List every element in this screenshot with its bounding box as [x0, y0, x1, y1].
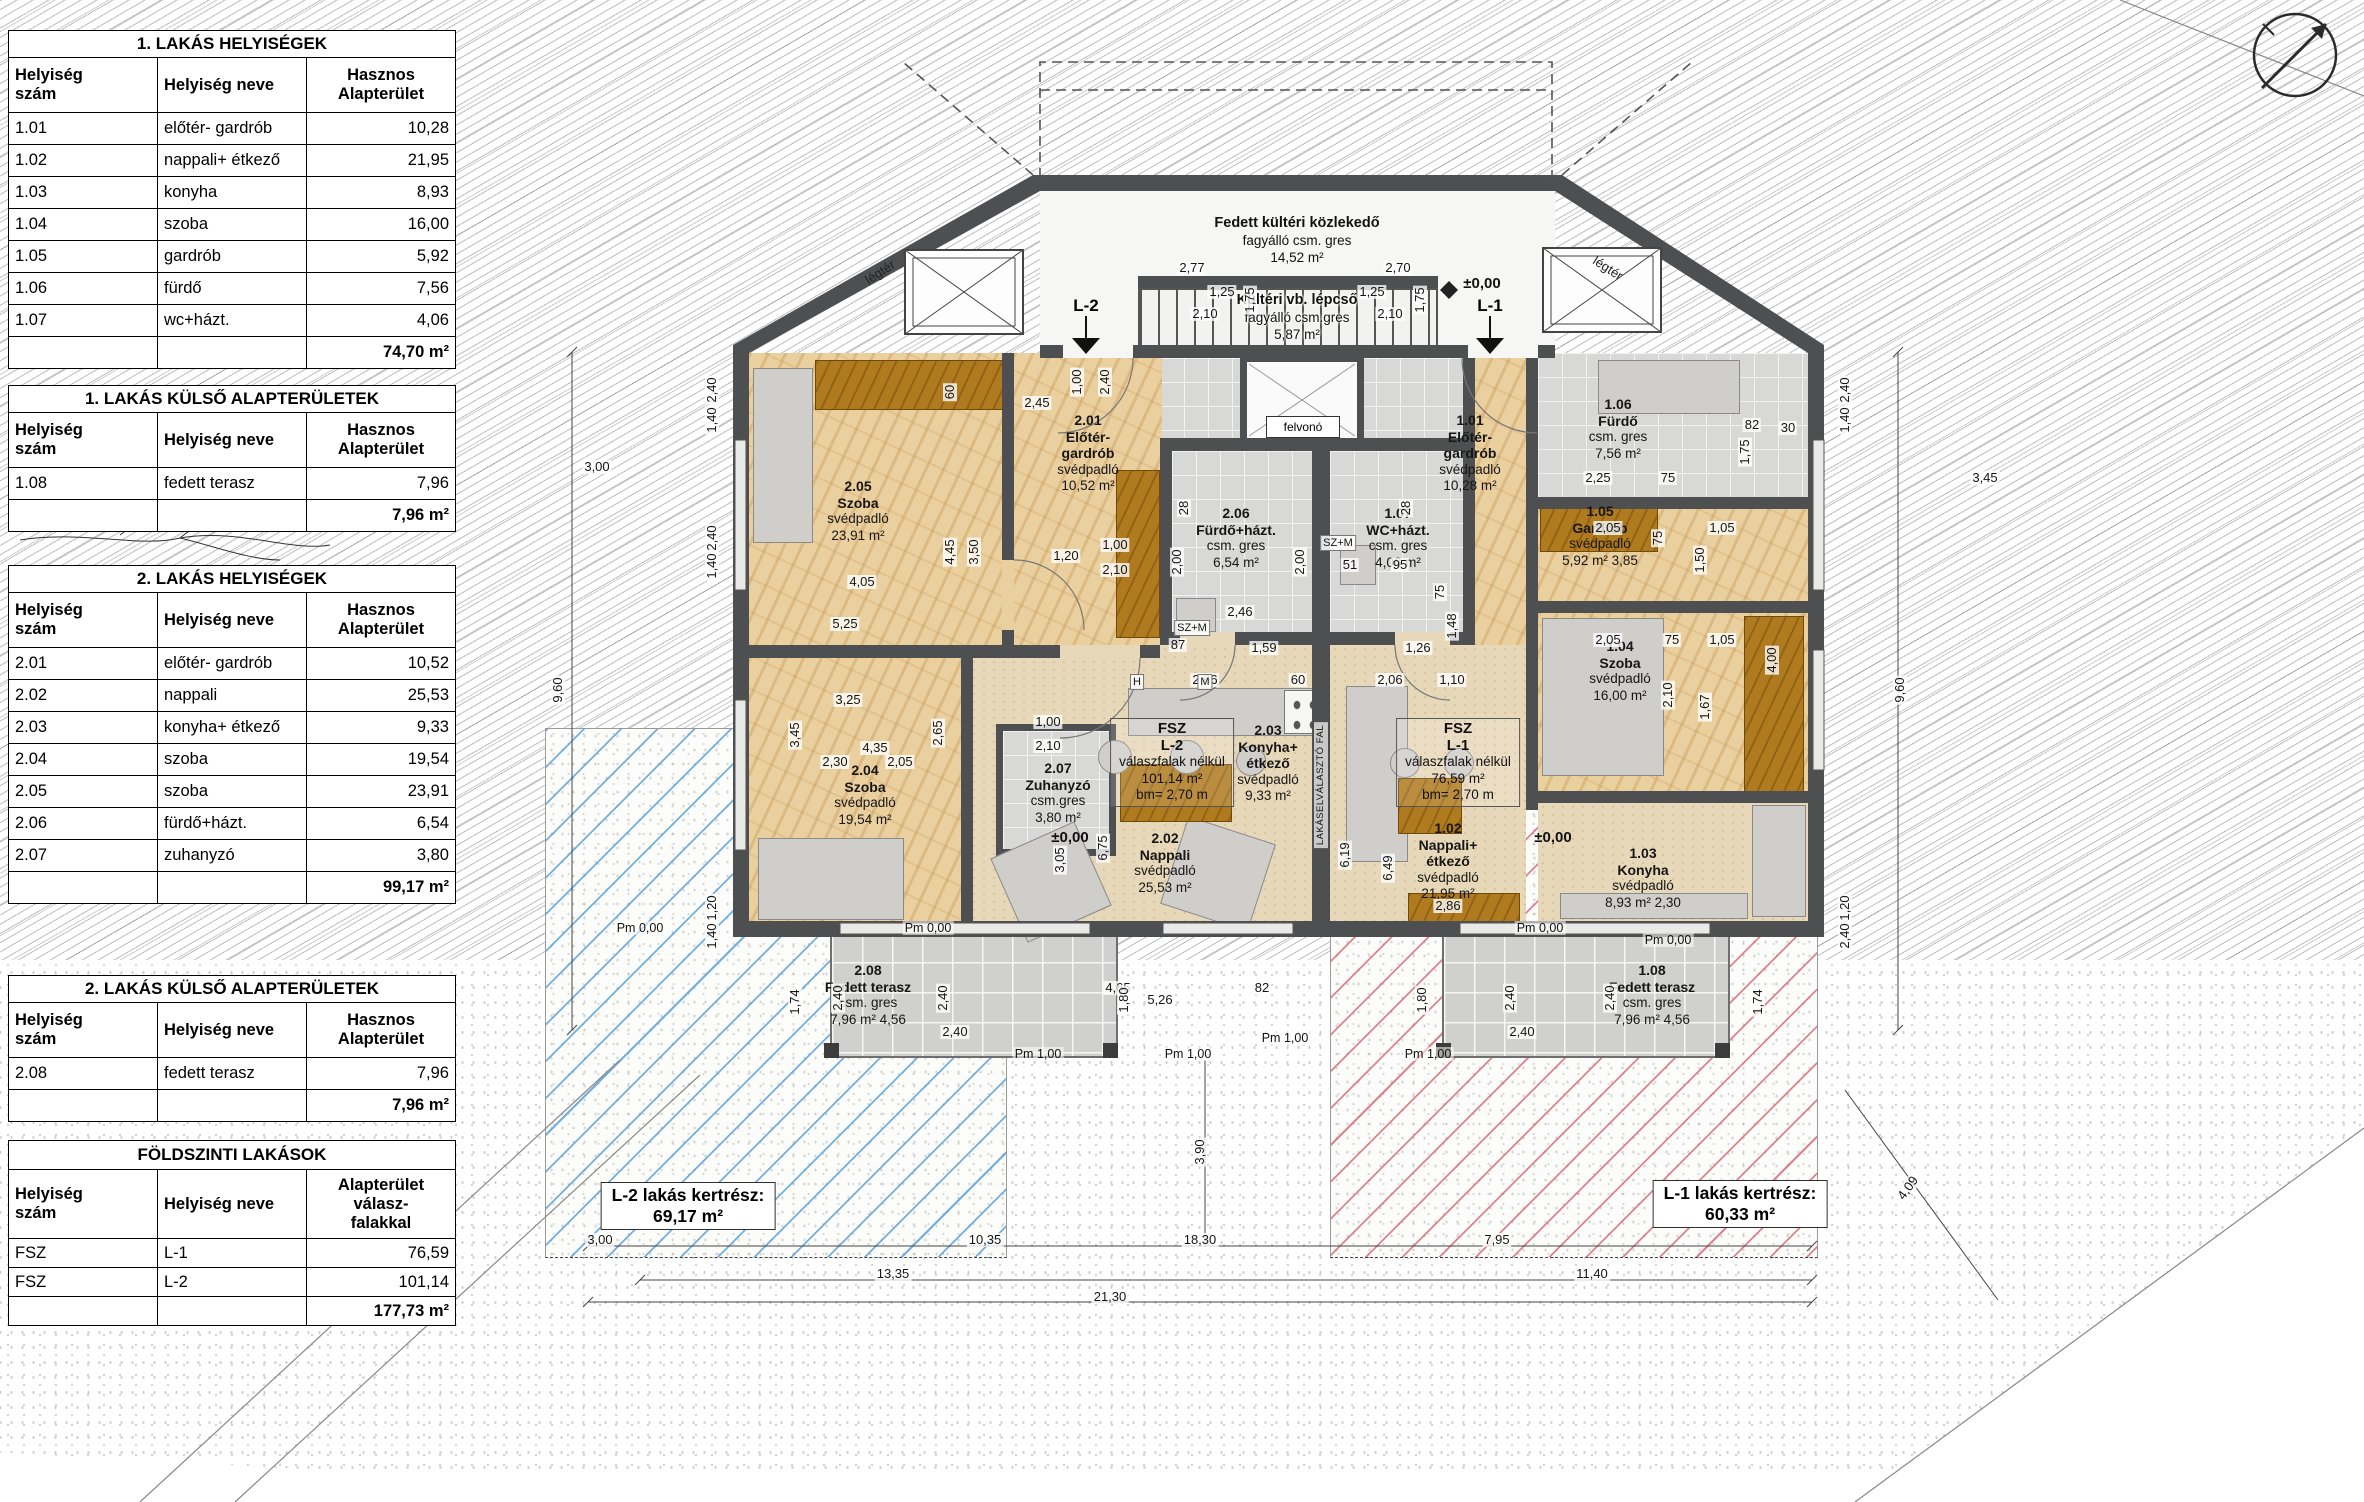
dim-label: 82: [1743, 418, 1761, 432]
dim-label: 2,40: [1838, 375, 1852, 404]
dim-label: 3,90: [1193, 1137, 1207, 1166]
room-label-1.04: 1.04Szobasvédpadló16,00 m²: [1535, 638, 1705, 704]
dim-label: 3,00: [585, 1233, 614, 1247]
dim-label: 2,46: [1225, 605, 1254, 619]
plan-annotation: ±0,00: [1532, 831, 1573, 845]
dim-label: 3,45: [788, 720, 802, 749]
terrace-pillar: [1715, 1043, 1730, 1058]
plan-annotation: Pm 1,00: [1403, 1047, 1454, 1061]
room-label-2.05: 2.05Szobasvédpadló23,91 m²: [773, 478, 943, 544]
entrance-area-label: Fedett kültéri közlekedő fagyálló csm. g…: [1137, 215, 1457, 266]
dim-label: 2,30: [820, 755, 849, 769]
dim-label: 1,50: [1693, 545, 1707, 574]
plan-annotation: SZ+M: [1174, 620, 1210, 636]
entrance-title: Fedett kültéri közlekedő: [1137, 215, 1457, 232]
dim-label: 2,40: [831, 983, 845, 1012]
area-table: FÖLDSZINTI LAKÁSOKHelyiségszámHelyiség n…: [8, 1140, 456, 1326]
dim-label: 5,25: [830, 617, 859, 631]
dim-label: 1,75: [1243, 285, 1257, 314]
dim-label: 1,40: [1838, 405, 1852, 434]
plan-annotation: H: [1130, 674, 1144, 690]
garden-l1-title: L-1 lakás kertrész:: [1664, 1183, 1817, 1204]
dim-label: 9,60: [1893, 675, 1907, 704]
dim-label: 18,30: [1182, 1233, 1219, 1247]
dim-label: 4,45: [943, 537, 957, 566]
dim-label: 2,40: [936, 983, 950, 1012]
table-apartment1-exterior: 1. LAKÁS KÜLSŐ ALAPTERÜLETEKHelyiségszám…: [8, 385, 456, 532]
dim-label: 2,06: [1375, 673, 1404, 687]
entry-marker-stem: [1085, 316, 1087, 338]
dim-label: 7,95: [1482, 1233, 1511, 1247]
dim-label: 1,40: [705, 405, 719, 434]
dim-label: 13,35: [875, 1267, 912, 1281]
stair-label: Kültéri vb. lépcső fagyálló csm.gres 5,8…: [1137, 292, 1457, 343]
dim-label: 1,10: [1437, 673, 1466, 687]
plan-annotation: Pm 1,00: [1013, 1047, 1064, 1061]
dim-label: 1,59: [1249, 641, 1278, 655]
dim-label: 1,20: [1838, 893, 1852, 922]
dim-label: 1,05: [1707, 521, 1736, 535]
dim-label: 2,05: [885, 755, 914, 769]
plan-annotation: SZ+M: [1320, 535, 1356, 551]
dim-label: 2,25: [1583, 471, 1612, 485]
fsz-l1-line1: FSZ: [1405, 721, 1511, 738]
dim-label: 1,05: [1707, 633, 1736, 647]
fsz-l1-area: 76,59 m²: [1405, 771, 1511, 788]
down-arrow-icon: [1072, 338, 1100, 354]
dim-label: 75: [1663, 633, 1681, 647]
room-label-1.06: 1.06Fürdőcsm. gres7,56 m²: [1533, 396, 1703, 462]
entry-marker-l1-label: L-1: [1476, 296, 1504, 316]
room-label-1.08: 1.08Fedett teraszcsm. gres7,96 m² 4,56: [1567, 962, 1737, 1028]
stair-material: fagyálló csm.gres: [1137, 309, 1457, 326]
fsz-l1-height: bm= 2,70 m: [1405, 787, 1511, 804]
room-label-2.08: 2.08Fedett teraszcsm. gres7,96 m² 4,56: [783, 962, 953, 1028]
entry-marker-l2-label: L-2: [1072, 296, 1100, 316]
dim-label: 95: [1391, 558, 1409, 572]
bed: [758, 838, 904, 920]
dim-label: 75: [1651, 529, 1665, 547]
elevator-label: felvonó: [1266, 416, 1340, 438]
dim-label: 75: [1659, 471, 1677, 485]
dim-label: 1,26: [1403, 641, 1432, 655]
dim-label: 51: [1341, 558, 1359, 572]
dim-label: 60: [943, 383, 957, 401]
fsz-l1-line2: L-1: [1405, 738, 1511, 755]
dim-label: 2,40: [1507, 1025, 1536, 1039]
room-label-2.04: 2.04Szobasvédpadló19,54 m²: [780, 762, 950, 828]
dim-label: 1,40: [705, 921, 719, 950]
room-label-1.03: 1.03Konyhasvédpadló8,93 m² 2,30: [1558, 845, 1728, 911]
dim-label: 2,00: [1170, 547, 1184, 576]
plan-annotation: ±0,00: [1461, 277, 1502, 291]
dim-label: 6,75: [1096, 833, 1110, 862]
wardrobe: [1744, 616, 1804, 798]
dim-label: 2,40: [705, 523, 719, 552]
dim-label: 2,77: [1177, 261, 1206, 275]
dim-label: 4,35: [860, 741, 889, 755]
stair-area-value: 5,87 m²: [1137, 326, 1457, 343]
dim-label: 2,45: [1022, 396, 1051, 410]
dim-label: 1,48: [1445, 611, 1459, 640]
dim-label: 3,45: [1970, 471, 1999, 485]
dim-label: 2,40: [705, 375, 719, 404]
plan-annotation: LAKÁSELVÁLASZTÓ FAL: [1314, 722, 1328, 848]
dim-label: 87: [1169, 638, 1187, 652]
area-table: 2. LAKÁS KÜLSŐ ALAPTERÜLETEKHelyiségszám…: [8, 975, 456, 1122]
dim-label: 2,70: [1383, 261, 1412, 275]
dim-label: 2,00: [1293, 547, 1307, 576]
dim-label: 10,35: [967, 1233, 1004, 1247]
dim-label: 28: [1177, 499, 1191, 517]
dim-label: 2,40: [940, 1025, 969, 1039]
dim-label: 11,40: [1574, 1267, 1610, 1281]
area-table: 1. LAKÁS HELYISÉGEKHelyiségszámHelyiség …: [8, 30, 456, 369]
wardrobe: [815, 360, 1010, 410]
stair-title: Kültéri vb. lépcső: [1137, 292, 1457, 309]
dim-label: 1,00: [1033, 715, 1062, 729]
dim-label: 2,10: [1375, 307, 1404, 321]
dim-label: 2,86: [1433, 899, 1462, 913]
garden-l2-label: L-2 lakás kertrész: 69,17 m²: [601, 1182, 776, 1230]
dim-label: 1,80: [1415, 985, 1429, 1014]
dim-label: 1,00: [1070, 367, 1084, 396]
entry-marker-l1: L-1: [1476, 296, 1504, 354]
dim-label: 1,00: [1100, 538, 1129, 552]
dim-label: 2,05: [1593, 521, 1622, 535]
room-101-floor: [1475, 353, 1526, 645]
dim-label: 2,40: [1098, 367, 1112, 396]
plan-annotation: Pm 0,00: [903, 921, 954, 935]
dim-label: 6,49: [1381, 853, 1395, 882]
dim-label: 1,40: [705, 551, 719, 580]
dim-label: 2,40: [1603, 983, 1617, 1012]
dim-label: 1,20: [705, 893, 719, 922]
dim-label: 2,40: [1503, 983, 1517, 1012]
table-apartment2-rooms: 2. LAKÁS HELYISÉGEKHelyiségszámHelyiség …: [8, 565, 456, 904]
dim-label: 1,25: [1207, 285, 1236, 299]
plan-annotation: Pm 0,00: [1515, 921, 1566, 935]
dim-label: 28: [1399, 499, 1413, 517]
dim-label: 4,00: [1765, 645, 1779, 674]
plan-annotation: Pm 1,00: [1260, 1031, 1311, 1045]
garden-l1-area: 60,33 m²: [1664, 1204, 1817, 1225]
plan-annotation: M: [1197, 674, 1212, 690]
area-table: 1. LAKÁS KÜLSŐ ALAPTERÜLETEKHelyiségszám…: [8, 385, 456, 532]
dim-label: 1,74: [788, 987, 802, 1016]
dim-label: 1,74: [1751, 987, 1765, 1016]
dim-label: 3,50: [967, 537, 981, 566]
dim-label: 2,10: [1100, 563, 1129, 577]
dim-label: 5,26: [1145, 993, 1174, 1007]
dim-label: 1,75: [1413, 285, 1427, 314]
dim-label: 2,10: [1661, 680, 1675, 709]
table-apartment2-exterior: 2. LAKÁS KÜLSŐ ALAPTERÜLETEKHelyiségszám…: [8, 975, 456, 1122]
dim-label: 9,60: [551, 675, 565, 704]
plan-annotation: ±0,00: [1049, 831, 1090, 845]
dim-label: 1,25: [1357, 285, 1386, 299]
plan-annotation: Pm 0,00: [1643, 933, 1694, 947]
dim-label: 4,05: [847, 575, 876, 589]
fsz-l1-block: FSZ L-1 válaszfalak nélkül 76,59 m² bm= …: [1396, 718, 1520, 807]
dim-label: 3,05: [1053, 845, 1067, 874]
room-label-2.07: 2.07Zuhanyzócsm.gres3,80 m²: [973, 760, 1143, 826]
dim-label: 21,30: [1092, 1290, 1129, 1304]
floorplan-sheet: 1. LAKÁS HELYISÉGEKHelyiségszámHelyiség …: [0, 0, 2364, 1502]
dim-label: 3,00: [582, 460, 611, 474]
dim-label: 2,10: [1033, 739, 1062, 753]
area-table: 2. LAKÁS HELYISÉGEKHelyiségszámHelyiség …: [8, 565, 456, 904]
room-label-2.01: 2.01Előtér-gardróbsvédpadló10,52 m²: [1003, 412, 1173, 495]
entry-marker-l2: L-2: [1072, 296, 1100, 354]
dim-label: 6,19: [1338, 840, 1352, 869]
dim-label: 75: [1433, 583, 1447, 601]
stair-landing-edge: [1138, 276, 1438, 288]
plan-annotation: Pm 0,00: [615, 921, 666, 935]
fsz-l1-line3: válaszfalak nélkül: [1405, 754, 1511, 771]
dim-label: 1,80: [1117, 985, 1131, 1014]
plan-annotation: Pm 1,00: [1163, 1047, 1214, 1061]
kitchen-counter: [1752, 805, 1806, 917]
dim-label: 3,25: [833, 693, 862, 707]
dim-label: 2,05: [1593, 633, 1622, 647]
garden-l2-title: L-2 lakás kertrész:: [612, 1185, 765, 1206]
down-arrow-icon: [1476, 338, 1504, 354]
garden-l1-label: L-1 lakás kertrész: 60,33 m²: [1653, 1180, 1828, 1228]
terrace-pillar: [1103, 1043, 1118, 1058]
dim-label: 2,40: [1838, 921, 1852, 950]
dim-label: 30: [1779, 421, 1797, 435]
dim-label: 2,10: [1190, 307, 1219, 321]
table-groundfloor-apartments: FÖLDSZINTI LAKÁSOKHelyiségszámHelyiség n…: [8, 1140, 456, 1326]
terrace-pillar: [824, 1043, 839, 1058]
dim-label: 2,65: [931, 718, 945, 747]
entrance-material: fagyálló csm. gres: [1137, 232, 1457, 249]
entry-marker-stem: [1489, 316, 1491, 338]
garden-l2-area: 69,17 m²: [612, 1206, 765, 1227]
table-apartment1-rooms: 1. LAKÁS HELYISÉGEKHelyiségszámHelyiség …: [8, 30, 456, 369]
dim-label: 60: [1289, 673, 1307, 687]
dim-label: 1,75: [1738, 437, 1752, 466]
room-label-1.01: 1.01Előtér-gardróbsvédpadló10,28 m²: [1385, 412, 1555, 495]
dim-label: 1,67: [1698, 692, 1712, 721]
dim-label: 82: [1253, 981, 1271, 995]
dim-label: 1,20: [1051, 549, 1080, 563]
